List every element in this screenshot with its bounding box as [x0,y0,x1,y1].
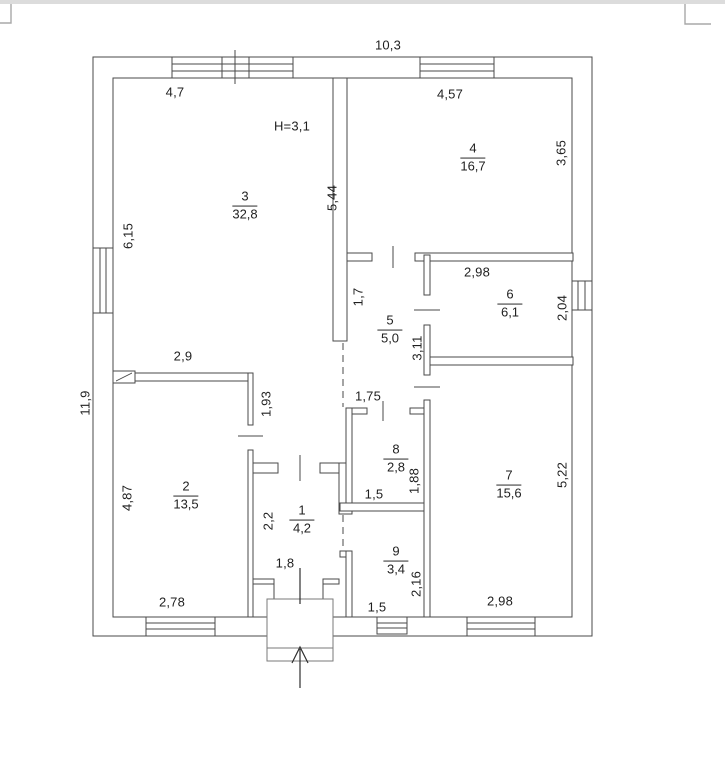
dim-overall-width: 10,3 [375,38,401,53]
wall-room9-left [346,551,352,617]
dim-overall-height: 11,9 [78,390,93,415]
wall-room4-bottom-b [415,253,573,261]
dim-room7-right: 5,22 [555,462,570,488]
dim-room4-top: 4,57 [437,87,463,102]
dim-room2-left: 4,87 [120,485,135,511]
dim-room3-left: 6,15 [121,223,136,249]
room-label-8: 8 2,8 [383,443,408,476]
wall-corridor-right-b [424,325,430,375]
window-left-room3 [93,248,113,313]
dim-room1-bottom: 1,8 [276,556,295,571]
room-2-area: 13,5 [173,498,198,513]
room-3-area: 32,8 [232,208,257,223]
room-8-number: 8 [383,443,408,460]
dim-room9-right: 2,16 [409,571,424,597]
wall-room8-top-a [352,408,367,414]
dim-room2-wall: 1,93 [259,391,274,417]
room-3-number: 3 [232,190,257,207]
dim-room3-right: 5,44 [325,185,340,211]
wall-room1-top-b [320,463,339,473]
window-top-room3 [172,57,293,78]
room-label-7: 7 15,6 [496,469,521,502]
wall-room8-top-b [410,408,424,414]
room-8-area: 2,8 [383,461,408,476]
room-label-9: 9 3,4 [383,545,408,578]
dim-corridor: 3,11 [410,335,425,360]
window-bottom-room9 [377,617,407,634]
room-9-area: 3,4 [383,563,408,578]
walls [93,50,592,636]
room-label-3: 3 32,8 [232,190,257,223]
dim-room4-right: 3,65 [554,140,569,166]
window-bottom-room7 [467,617,535,636]
room-7-area: 15,6 [496,487,521,502]
dim-hall-top: 1,75 [355,389,381,404]
wall-corridor-right-a [424,255,430,295]
wall-room1-bottom-a [253,579,274,584]
room-5-number: 5 [377,314,402,331]
dim-room8-width: 1,5 [365,487,384,502]
room-1-area: 4,2 [289,522,314,537]
wall-room8-9 [340,503,424,511]
floor-plan-drawing [0,0,725,760]
wall-room4-bottom-a [347,253,372,261]
room-7-number: 7 [496,469,521,486]
dim-room3-top: 4,7 [166,85,185,100]
wall-room2-right-b [248,450,253,617]
dim-room6-right: 2,04 [555,295,570,321]
wall-room6-7 [430,357,573,365]
dim-room8-right: 1,88 [407,468,422,494]
dim-wall-stub: 1,7 [351,288,366,307]
wall-corridor-right-c [424,400,430,617]
wall-room1-bottom-b [323,579,339,584]
window-top-room4 [420,57,494,78]
room-5-area: 5,0 [377,332,402,347]
room-9-number: 9 [383,545,408,562]
window-bottom-room2 [146,617,215,636]
dim-room2-top: 2,9 [174,349,193,364]
room-label-4: 4 16,7 [460,142,485,175]
room-1-number: 1 [289,504,314,521]
top-page-band [0,0,725,4]
dim-room7-bottom: 2,98 [487,594,513,609]
floor-plan-page: 10,3 11,9 H=3,1 4,7 6,15 5,44 4,57 3,65 … [0,0,725,760]
vent-hatch-symbol [113,371,135,383]
wall-room8-left [346,408,352,504]
dim-room2-bottom: 2,78 [159,595,185,610]
room-2-number: 2 [173,480,198,497]
room-6-number: 6 [497,288,522,305]
dim-room1-left: 2,2 [261,512,276,531]
page-corner-mark-left [0,4,11,23]
window-right-room6 [572,281,592,310]
room-label-1: 1 4,2 [289,504,314,537]
page-corner-mark-right [685,4,711,24]
room-6-area: 6,1 [497,306,522,321]
room-label-6: 6 6,1 [497,288,522,321]
dim-room9-bottom: 1,5 [368,600,387,615]
room-4-area: 16,7 [460,160,485,175]
wall-room1-top-a [253,463,278,473]
room-4-number: 4 [460,142,485,159]
dim-ceiling-height: H=3,1 [274,119,310,134]
room-label-2: 2 13,5 [173,480,198,513]
dim-room6-top: 2,98 [464,265,490,280]
wall-room2-right-a [248,373,253,425]
room-label-5: 5 5,0 [377,314,402,347]
